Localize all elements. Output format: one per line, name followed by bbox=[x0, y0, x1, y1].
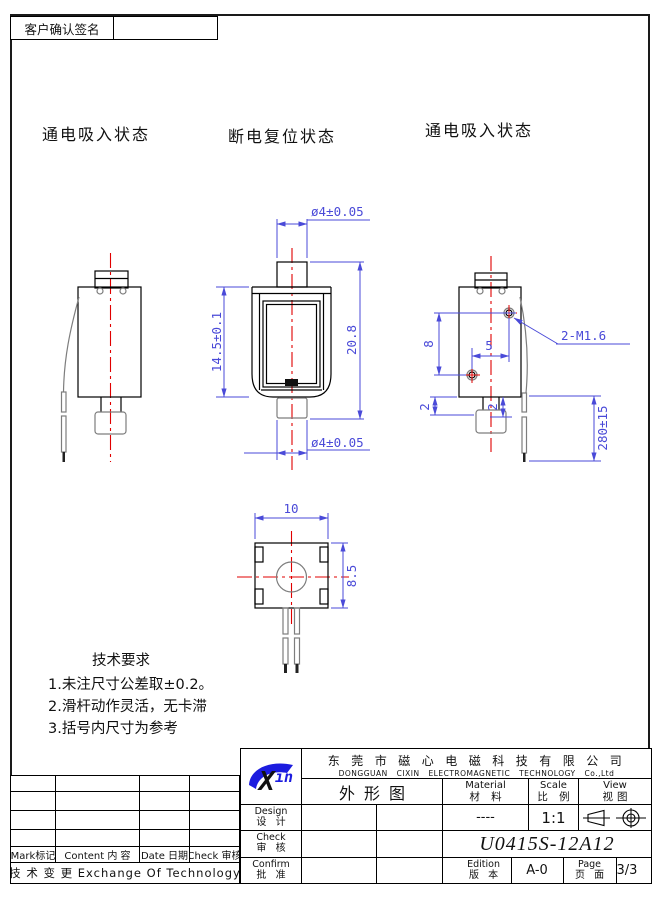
dim-total-height: 20.8 bbox=[344, 325, 359, 355]
revision-empty-cell bbox=[140, 830, 190, 847]
confirm-label: Confirm 批 准 bbox=[241, 858, 302, 883]
drawing-sheet: .ko{stroke:#000;fill:none;stroke-width:1… bbox=[0, 0, 661, 905]
check-label: Check 审 核 bbox=[241, 831, 302, 858]
dim-thread-callout: 2-M1.6 bbox=[561, 328, 606, 343]
check-label-cn: 审 核 bbox=[253, 843, 288, 855]
dim-top-depth: 8.5 bbox=[344, 565, 359, 588]
dim-top-width: 10 bbox=[283, 501, 298, 516]
check-date-cell bbox=[377, 831, 443, 858]
confirm-label-cn: 批 准 bbox=[253, 870, 288, 882]
company-logo-icon: X in bbox=[242, 752, 300, 802]
model-number: U0415S-12A12 bbox=[443, 831, 651, 858]
dim-bottom-diameter: ø4±0.05 bbox=[311, 435, 364, 450]
revision-empty-cell bbox=[190, 830, 239, 847]
signature-label: 客户确认签名 bbox=[11, 17, 114, 39]
state-label-left: 通电吸入状态 bbox=[42, 121, 150, 145]
edition-page-row: Edition 版 本 A-0 Page 页 面 3/3 bbox=[443, 858, 651, 883]
customer-signature-table: 客户确认签名 bbox=[10, 16, 218, 40]
edition-label-cn: 版 本 bbox=[466, 870, 501, 882]
design-name-cell bbox=[302, 805, 377, 831]
edition-value: A-0 bbox=[512, 858, 564, 883]
side-view-energized bbox=[62, 253, 142, 462]
design-label-cn: 设 计 bbox=[253, 817, 288, 829]
revision-empty-cell bbox=[190, 792, 239, 811]
side-view-holes: 8 5 2-M1.6 2 2 280±15 bbox=[417, 256, 630, 462]
revision-empty-cell bbox=[140, 776, 190, 792]
revision-empty-cell bbox=[190, 776, 239, 792]
state-label-right: 通电吸入状态 bbox=[425, 117, 533, 141]
revision-header-content: Content 内 容 bbox=[56, 847, 140, 863]
page-label-cn: 页 面 bbox=[572, 870, 607, 882]
dim-lead-length: 280±15 bbox=[595, 405, 610, 450]
dim-hole-spacing-horizontal: 5 bbox=[485, 338, 493, 353]
company-name-cn: 东莞市磁心电磁科技有限公司 bbox=[320, 752, 634, 769]
scale-label-en: Scale bbox=[540, 780, 567, 791]
logo-in-text: in bbox=[275, 768, 293, 786]
view-label-cn: 视图 bbox=[599, 791, 632, 803]
confirm-date-cell bbox=[377, 858, 443, 883]
company-name-cell: 东莞市磁心电磁科技有限公司 DONGGUAN CIXIN ELECTROMAGN… bbox=[302, 749, 651, 779]
check-name-cell bbox=[302, 831, 377, 858]
material-value: ---- bbox=[443, 805, 529, 831]
revision-table: Mark标记 Content 内 容 Date 日期 Check 审核 技 术 … bbox=[10, 775, 240, 884]
logo-x-text: X bbox=[257, 767, 277, 797]
tech-requirement-item: 1.未注尺寸公差取±0.2。 bbox=[48, 674, 308, 696]
projection-symbol bbox=[579, 805, 651, 831]
tech-requirements-title: 技术要求 bbox=[92, 650, 308, 672]
dim-hole-spacing-vertical: 8 bbox=[421, 340, 436, 348]
tech-requirement-item: 3.括号内尺寸为参考 bbox=[48, 718, 308, 740]
projection-symbol-icon bbox=[582, 807, 648, 829]
edition-label-en: Edition bbox=[467, 860, 500, 870]
page-label-en: Page bbox=[578, 860, 601, 870]
edition-label: Edition 版 本 bbox=[457, 858, 512, 883]
revision-empty-cell bbox=[56, 792, 140, 811]
design-label: Design 设 计 bbox=[241, 805, 302, 831]
tech-requirement-item: 2.滑杆动作灵活，无卡滞 bbox=[48, 696, 308, 718]
front-view-deenergized: ø4±0.05 14.5±0.1 20.8 ø4±0.05 bbox=[209, 204, 370, 470]
company-logo: X in bbox=[241, 749, 302, 805]
scale-value: 1:1 bbox=[529, 805, 579, 831]
dim-offset-left: 2 bbox=[417, 403, 432, 411]
drawing-title: 外形图 bbox=[302, 779, 443, 805]
view-label-en: View bbox=[603, 780, 627, 791]
scale-label: Scale 比 例 bbox=[529, 779, 579, 805]
dim-top-diameter: ø4±0.05 bbox=[311, 204, 364, 219]
revision-header-date: Date 日期 bbox=[140, 847, 190, 863]
revision-empty-cell bbox=[140, 792, 190, 811]
top-view: 10 8.5 bbox=[237, 501, 359, 673]
confirm-name-cell bbox=[302, 858, 377, 883]
check-label-en: Check bbox=[256, 833, 285, 843]
revision-empty-cell bbox=[140, 811, 190, 830]
scale-label-cn: 比 例 bbox=[533, 791, 573, 803]
revision-header-check: Check 审核 bbox=[190, 847, 239, 863]
dim-frame-height: 14.5±0.1 bbox=[209, 312, 224, 372]
revision-empty-cell bbox=[56, 811, 140, 830]
page-label: Page 页 面 bbox=[564, 858, 617, 883]
material-label-en: Material bbox=[465, 780, 506, 791]
view-label: View 视图 bbox=[579, 779, 651, 805]
revision-footer: 技 术 变 更 Exchange Of Technology bbox=[11, 863, 239, 883]
revision-empty-cell bbox=[11, 830, 56, 847]
page-value: 3/3 bbox=[617, 858, 638, 883]
company-name-en: DONGGUAN CIXIN ELECTROMAGNETIC TECHNOLOG… bbox=[339, 769, 615, 778]
state-label-middle: 断电复位状态 bbox=[228, 123, 336, 147]
material-label-cn: 材 料 bbox=[465, 791, 505, 803]
tech-requirements: 技术要求 1.未注尺寸公差取±0.2。 2.滑杆动作灵活，无卡滞 3.括号内尺寸… bbox=[48, 650, 308, 740]
design-label-en: Design bbox=[255, 807, 288, 817]
material-label: Material 材 料 bbox=[443, 779, 529, 805]
design-date-cell bbox=[377, 805, 443, 831]
revision-empty-cell bbox=[11, 792, 56, 811]
confirm-label-en: Confirm bbox=[252, 860, 289, 870]
dim-offset-right: 2 bbox=[485, 403, 500, 411]
revision-empty-cell bbox=[56, 776, 140, 792]
revision-empty-cell bbox=[190, 811, 239, 830]
revision-empty-cell bbox=[56, 830, 140, 847]
revision-header-mark: Mark标记 bbox=[11, 847, 56, 863]
revision-empty-cell bbox=[11, 776, 56, 792]
title-block: X in 东莞市磁心电磁科技有限公司 DONGGUAN CIXIN ELECTR… bbox=[240, 748, 652, 884]
signature-value-cell bbox=[114, 17, 217, 39]
revision-empty-cell bbox=[11, 811, 56, 830]
